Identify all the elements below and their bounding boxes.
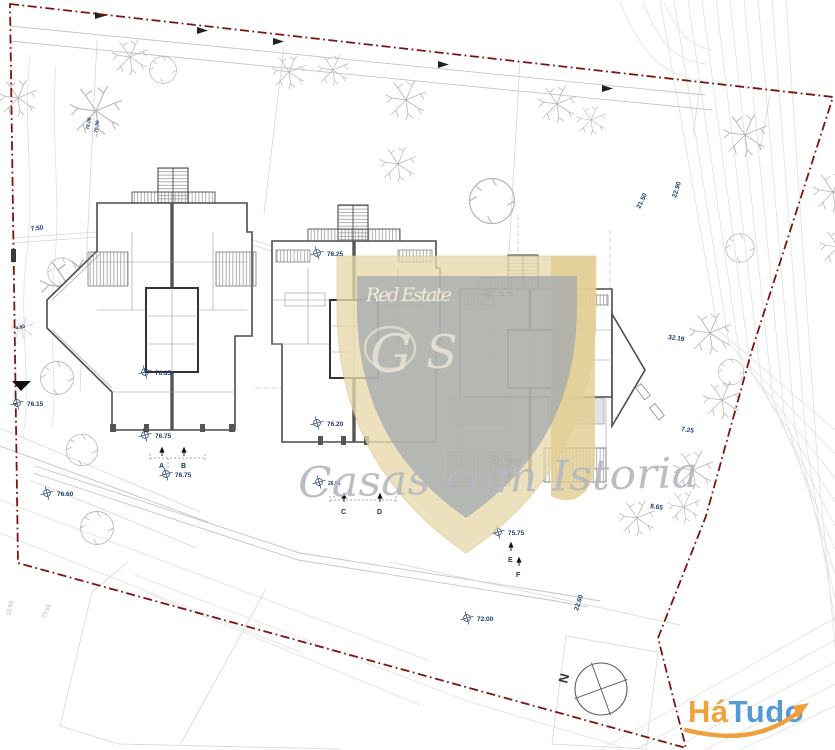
tree-icon — [112, 40, 148, 75]
bush-icon — [41, 362, 74, 395]
elevation-label: 76.75 — [175, 472, 192, 479]
section-arrow-icon — [159, 447, 164, 456]
watermark-monogram-right: S — [426, 325, 458, 379]
section-label-c: C — [341, 509, 346, 516]
watermark-brand-text: Red Estate — [365, 284, 452, 306]
bush-icon — [718, 359, 744, 385]
tree-icon — [272, 56, 306, 89]
gate-marker — [11, 249, 16, 262]
dim-label: 22.90 — [671, 181, 683, 199]
bush-icon — [470, 179, 515, 224]
elevation-label: 72.00 — [477, 616, 494, 623]
benchmark-icon — [461, 612, 474, 625]
dim-label: 7.50 — [30, 224, 44, 233]
compass-north-label: N — [555, 672, 572, 685]
dim-label: 8.65 — [650, 503, 664, 512]
elevation-label: 76.85 — [155, 370, 172, 377]
tree-icon — [576, 106, 606, 135]
section-label-e: E — [508, 557, 513, 564]
dim-label: 78.06 — [85, 117, 93, 131]
tree-icon — [813, 173, 835, 212]
section-label-d: D — [377, 509, 382, 516]
tree-icon — [820, 230, 835, 265]
site-plan-drawing: 7.50 78.06 76.90 4.90 76.15 76.85 76.75 … — [0, 0, 835, 750]
section-arrow-icon — [516, 557, 521, 566]
benchmark-icon — [11, 397, 24, 410]
bush-icon — [81, 512, 114, 545]
dim-label: 12.50 — [6, 600, 15, 617]
logo-text-ha: Há — [688, 694, 729, 729]
watermark-tagline: Casas com Istoria — [297, 448, 698, 507]
watermark-monogram-left: G — [370, 325, 412, 385]
bush-icon — [150, 57, 177, 84]
svg-text:HáTudo: HáTudo — [688, 694, 804, 729]
north-compass: N — [555, 653, 636, 725]
elevation-label: 76.20 — [327, 421, 344, 428]
hatudo-logo: HáTudo — [686, 694, 809, 736]
tree-icon — [0, 80, 37, 117]
tree-icon — [723, 114, 767, 157]
tree-icon — [538, 86, 576, 123]
section-label-b: B — [181, 463, 186, 470]
section-arrow-icon — [181, 447, 186, 456]
elevation-label: 75.75 — [508, 530, 525, 537]
road-direction-arrows — [95, 12, 613, 92]
dim-label: 32.19 — [668, 334, 685, 343]
bush-icon — [66, 434, 98, 466]
elevation-label: 76.75 — [155, 433, 172, 440]
dim-label: 21.50 — [636, 192, 650, 210]
section-arrow-icon — [508, 542, 513, 551]
dim-label: 76.90 — [93, 120, 101, 134]
section-label-a: A — [159, 463, 164, 470]
elevation-label: 76.60 — [57, 491, 74, 498]
site-plan-page: 7.50 78.06 76.90 4.90 76.15 76.85 76.75 … — [0, 0, 835, 750]
bush-icon — [726, 234, 755, 263]
tree-icon — [380, 147, 416, 182]
logo-text-tudo: Tudo — [729, 694, 804, 729]
watermark-shield: Red Estate G S — [337, 256, 596, 553]
building-left — [47, 168, 256, 432]
dim-label: 73.55 — [41, 603, 53, 620]
tree-icon — [386, 81, 426, 120]
section-label-f: F — [516, 572, 521, 579]
dim-label: 7.25 — [681, 426, 695, 435]
elevation-label: 76.15 — [27, 401, 44, 408]
